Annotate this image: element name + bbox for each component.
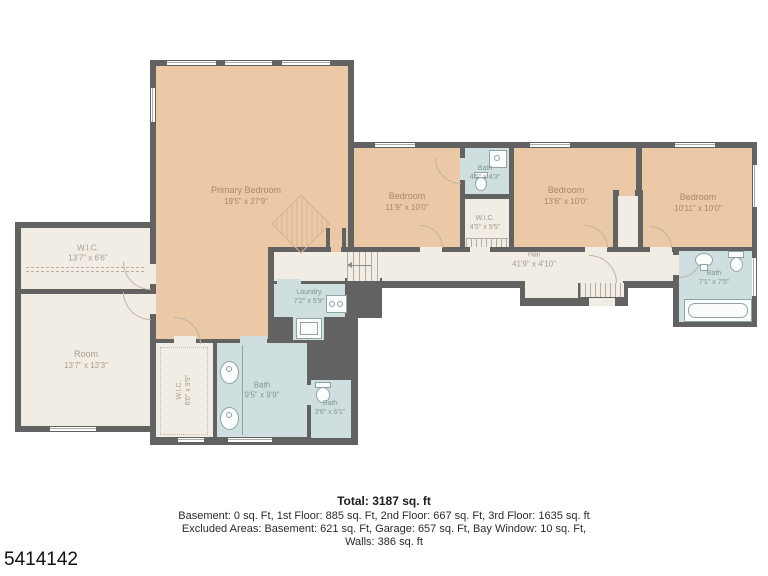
bath-right-label: Bath 7'1" x 7'5" xyxy=(699,269,730,287)
vanity-counter-icon xyxy=(242,345,243,435)
room-closet-mid xyxy=(618,196,638,247)
room-label: Room 13'7" x 13'3" xyxy=(64,349,108,371)
window xyxy=(530,143,570,147)
sink-icon xyxy=(220,407,239,430)
bathtub-basin-icon xyxy=(688,303,748,318)
bedroom-1-label: Bedroom 11'9" x 10'0" xyxy=(385,191,428,213)
wic-left-label: W.I.C. 13'7" x 6'6" xyxy=(68,244,107,265)
stairwell-wall xyxy=(345,278,382,318)
window xyxy=(752,258,756,296)
bedroom-3-label: Bedroom 10'11" x 10'0" xyxy=(674,192,722,214)
walls-area: Walls: 386 sq. ft xyxy=(0,536,768,549)
area-summary: Total: 3187 sq. ft Basement: 0 sq. Ft, 1… xyxy=(0,494,768,549)
toilet-icon xyxy=(730,257,743,272)
closet-rod-icon xyxy=(26,267,144,272)
dryer-door-icon xyxy=(300,322,318,335)
closet-shelf-icon xyxy=(466,238,508,247)
plan-id: 5414142 xyxy=(4,549,78,571)
door-gap xyxy=(307,385,311,405)
total-area: Total: 3187 sq. ft xyxy=(0,494,768,508)
window xyxy=(178,438,204,442)
entry-closet-icon xyxy=(578,283,626,299)
window xyxy=(282,61,330,65)
bath-small-label: Bath 4'5" x 4'3" xyxy=(470,164,501,182)
door-gap-closet-mid xyxy=(619,190,635,196)
hall-label: Hall 41'9" x 4'10" xyxy=(512,250,556,269)
door-gap-primary-stairs xyxy=(331,247,341,252)
window xyxy=(50,427,96,431)
laundry-label: Laundry 7'2" x 5'9" xyxy=(294,288,325,306)
washer-knob-icon xyxy=(329,301,335,307)
window xyxy=(675,143,715,147)
stair-entry-stub-right xyxy=(342,228,346,252)
window xyxy=(151,88,155,122)
excluded-areas: Excluded Areas: Basement: 621 sq. Ft, Ga… xyxy=(0,523,768,536)
floor-areas: Basement: 0 sq. Ft, 1st Floor: 885 sq. F… xyxy=(0,510,768,523)
bath-lower-label: Bath 3'6" x 6'1" xyxy=(315,399,346,417)
window xyxy=(375,143,415,147)
window xyxy=(753,165,757,207)
wic-lower-label: W.I.C. 6'0" x 9'9" xyxy=(175,375,193,406)
wic-center-label: W.I.C. 4'5" x 5'5" xyxy=(470,214,501,232)
stairs-arrow-icon xyxy=(351,265,371,266)
door-gap xyxy=(240,336,267,344)
door-gap xyxy=(470,247,490,252)
shower-drain-icon xyxy=(494,155,500,161)
sink-drain-icon xyxy=(226,412,232,418)
bath-main-label: Bath 9'5" x 9'9" xyxy=(245,381,280,402)
washer-knob-icon xyxy=(337,301,343,307)
stair-entry-stub-left xyxy=(326,228,330,252)
door-gap xyxy=(277,279,301,285)
primary-bedroom-label: Primary Bedroom 19'5" x 27'9" xyxy=(211,185,281,207)
room-primary-bedroom-lower xyxy=(156,247,268,339)
window xyxy=(167,61,216,65)
stairs-arrowhead-icon xyxy=(347,262,352,268)
window xyxy=(228,438,272,442)
floor-plan: Primary Bedroom 19'5" x 27'9" W.I.C. 13'… xyxy=(0,0,768,576)
sink-icon xyxy=(220,361,239,384)
door-gap xyxy=(589,298,615,306)
bedroom-2-label: Bedroom 13'6" x 10'0" xyxy=(544,185,588,207)
sink-drain-icon xyxy=(226,366,232,372)
window xyxy=(225,61,272,65)
